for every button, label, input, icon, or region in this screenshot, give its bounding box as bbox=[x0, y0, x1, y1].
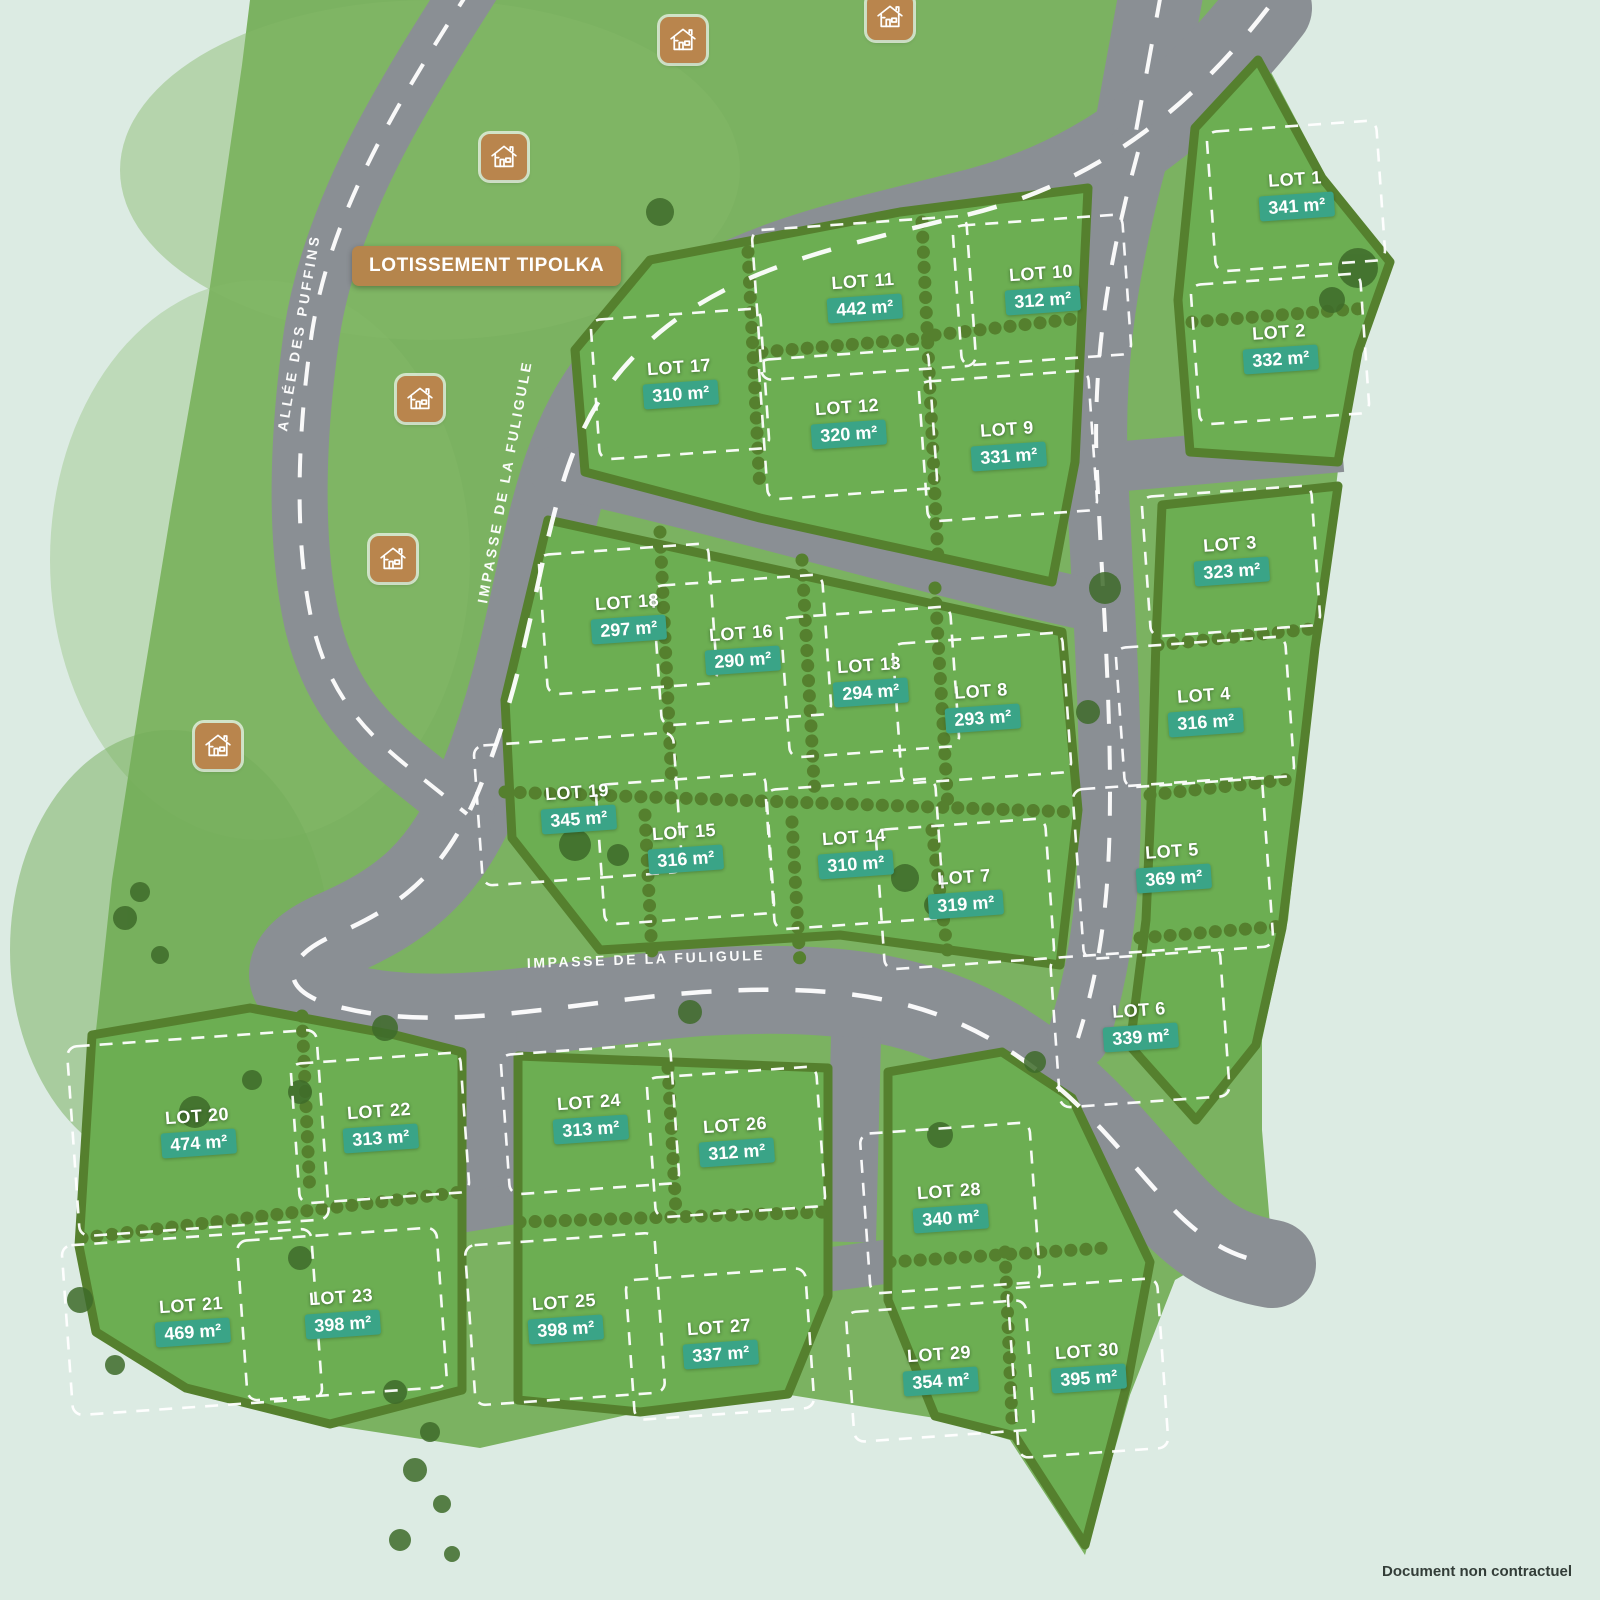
tree bbox=[151, 946, 169, 964]
tree bbox=[1076, 700, 1100, 724]
road-spur-a bbox=[489, 1030, 492, 1207]
tree bbox=[105, 1355, 125, 1375]
tree bbox=[433, 1495, 451, 1513]
tree bbox=[607, 844, 629, 866]
tree bbox=[372, 1015, 398, 1041]
tree bbox=[113, 906, 137, 930]
title-banner: LOTISSEMENT TIPOLKA bbox=[352, 246, 621, 286]
tree bbox=[927, 1122, 953, 1148]
tree bbox=[389, 1529, 411, 1551]
hedge bbox=[302, 1016, 310, 1196]
tree bbox=[179, 1096, 211, 1128]
tree bbox=[891, 864, 919, 892]
tree bbox=[559, 829, 591, 861]
tree bbox=[130, 882, 150, 902]
tree bbox=[67, 1287, 93, 1313]
tree bbox=[646, 198, 674, 226]
tree bbox=[420, 1422, 440, 1442]
tree bbox=[678, 1000, 702, 1024]
tree bbox=[1024, 1051, 1046, 1073]
tree bbox=[1319, 287, 1345, 313]
tree bbox=[1089, 572, 1121, 604]
house-icon bbox=[397, 376, 443, 422]
house-icon bbox=[660, 17, 706, 63]
block-lots-20-23 bbox=[79, 1008, 462, 1424]
house-icon bbox=[195, 723, 241, 769]
house-icon bbox=[370, 536, 416, 582]
tree bbox=[288, 1246, 312, 1270]
road-spur-b bbox=[851, 1037, 856, 1242]
tree bbox=[444, 1546, 460, 1562]
tree bbox=[403, 1458, 427, 1482]
tree bbox=[242, 1070, 262, 1090]
tree bbox=[1338, 248, 1378, 288]
subdivision-plan: ALLÉE DES PUFFINS IMPASSE DE LA FULIGULE… bbox=[0, 0, 1600, 1600]
footer-disclaimer: Document non contractuel bbox=[1382, 1563, 1572, 1580]
house-icon bbox=[481, 134, 527, 180]
house-icon bbox=[867, 0, 913, 40]
block-lots-3-6 bbox=[1130, 486, 1338, 1120]
site-map: ALLÉE DES PUFFINS IMPASSE DE LA FULIGULE… bbox=[0, 0, 1600, 1600]
